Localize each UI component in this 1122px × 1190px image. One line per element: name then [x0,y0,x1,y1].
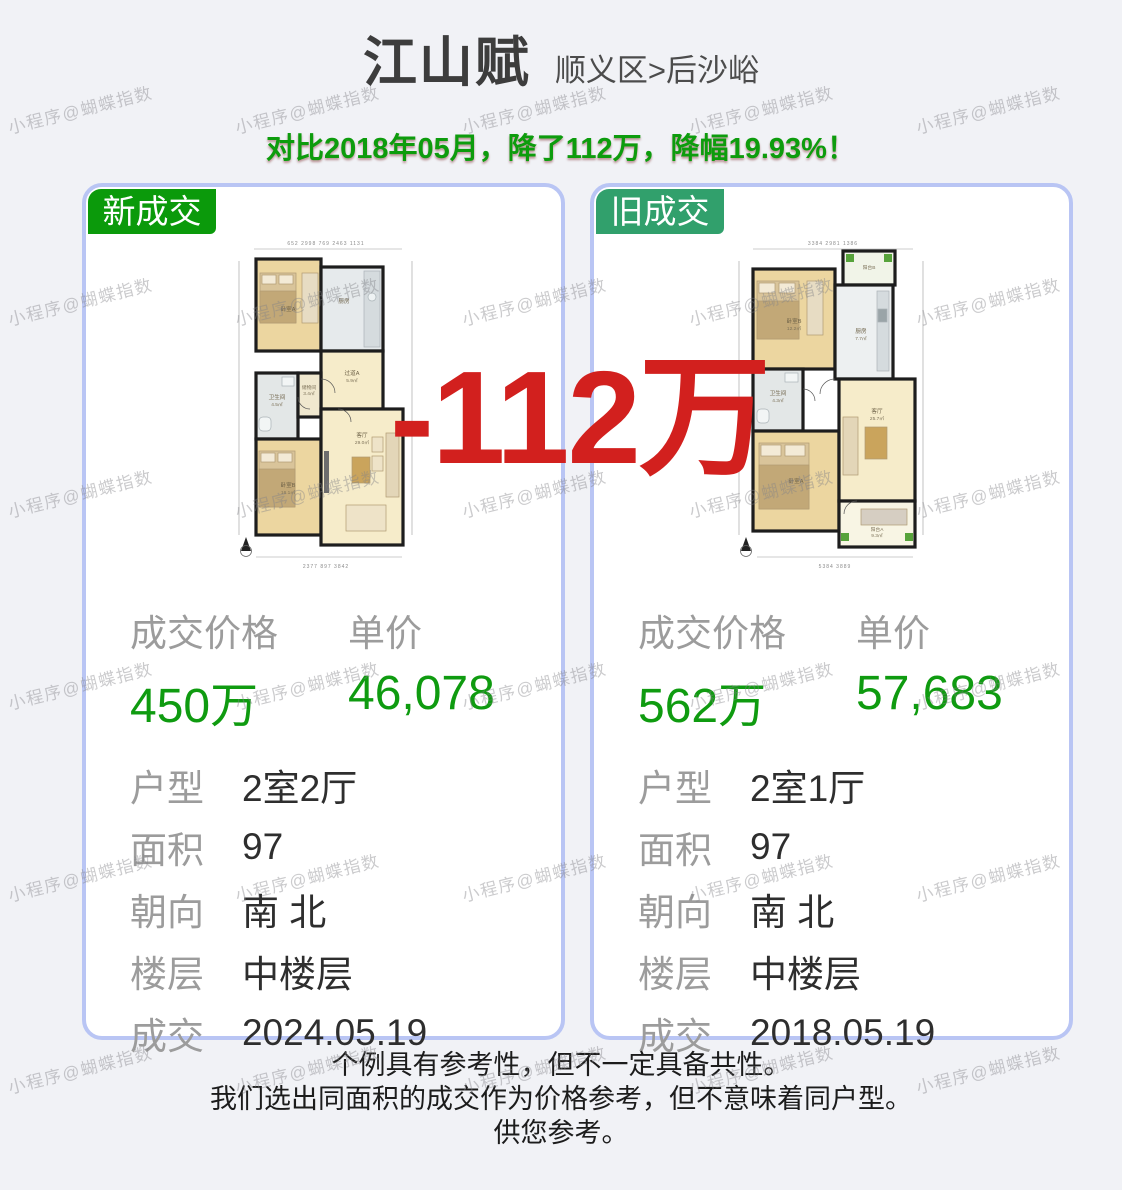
disclaimer: 个例具有参考性，但不一定具备共性。 我们选出同面积的成交作为价格参考，但不意味着… [0,1048,1122,1150]
breadcrumb: 顺义区>后沙峪 [555,45,759,90]
detail-value: 南 北 [242,882,326,936]
disclaimer-line-2: 我们选出同面积的成交作为价格参考，但不意味着同户型。 [0,1082,1122,1116]
disclaimer-line-3: 供您参考。 [0,1116,1122,1150]
detail-value: 中楼层 [242,944,353,998]
new-deal-badge: 新成交 [88,189,216,234]
price-label: 成交价格 [638,603,856,657]
room-balcony-a-area: 9.3㎡ [871,532,883,539]
header: 江山赋 顺义区>后沙峪 [0,0,1122,97]
dimension-bottom-label: 2377 897 3842 [303,564,349,570]
detail-row-floor: 楼层 中楼层 [638,940,1069,1002]
room-living-area: 25.7㎡ [869,415,883,422]
dimension-top-label: 3384 2981 1386 [807,241,857,247]
room-kitchen-label: 厨房 [338,297,350,305]
compass-icon [241,537,252,557]
detail-value: 南 北 [750,882,834,936]
room-kitchen-label: 厨房 [855,327,867,335]
detail-label: 朝向 [638,882,750,936]
detail-label: 户型 [638,758,750,812]
unit-price-value: 57,683 [856,666,1069,721]
unit-price-label: 单价 [856,603,1069,657]
compass-icon [740,537,751,557]
unit-price-label: 单价 [348,603,561,657]
dimension-top-label: 652 2998 769 2463 1131 [287,241,364,247]
room-bedroom-b-area: 16.1㎡ [281,489,295,496]
detail-label: 面积 [130,820,242,874]
card-new-deal: 新成交 652 2998 769 2463 1131 [82,183,565,1040]
share-card-page: 江山赋 顺义区>后沙峪 对比2018年05月，降了112万，降幅19.93%！ … [0,0,1122,1190]
card-old-deal: 旧成交 3384 2981 1386 [590,183,1073,1040]
price-section: 成交价格 562万 单价 57,683 [594,577,1069,736]
detail-row-area: 面积 97 [638,816,1069,878]
unit-price-value: 46,078 [348,666,561,721]
detail-list: 户型 2室1厅 面积 97 朝向 南 北 楼层 中楼层 成交 2018.05 [594,736,1069,1064]
room-bath-area: 4.5㎡ [271,401,283,408]
room-living-label: 客厅 [356,431,368,439]
detail-label: 楼层 [130,944,242,998]
detail-row-layout: 户型 2室2厅 [130,754,561,816]
detail-value: 97 [242,826,283,868]
room-bedroom-b-area: 12.2㎡ [786,325,800,332]
detail-value: 97 [750,826,791,868]
price-value: 562万 [638,666,856,736]
page-title: 江山赋 [363,18,531,97]
room-bath-label: 卫生间 [269,393,286,401]
price-value: 450万 [130,666,348,736]
room-bath-label: 卫生间 [769,389,786,397]
detail-value: 2室2厅 [242,758,357,812]
room-balcony-b-label: 阳台B [862,264,875,271]
old-deal-badge: 旧成交 [596,189,724,234]
detail-value: 中楼层 [750,944,861,998]
detail-row-floor: 楼层 中楼层 [130,940,561,1002]
detail-label: 户型 [130,758,242,812]
room-living-label: 客厅 [871,407,883,415]
detail-value: 2室1厅 [750,758,865,812]
room-living-area: 29.0㎡ [355,439,369,446]
detail-row-orientation: 朝向 南 北 [638,878,1069,940]
price-section: 成交价格 450万 单价 46,078 [86,577,561,736]
disclaimer-line-1: 个例具有参考性，但不一定具备共性。 [0,1048,1122,1082]
room-closet-area: 3.4㎡ [303,390,315,397]
room-bedroom-b-label: 卧室B [281,481,296,489]
price-label: 成交价格 [130,603,348,657]
detail-label: 朝向 [130,882,242,936]
dimension-bottom-label: 5384 3889 [818,564,851,570]
detail-row-area: 面积 97 [130,816,561,878]
room-bedroom-a-label: 卧室A [281,305,296,313]
price-drop-announcement: 对比2018年05月，降了112万，降幅19.93%！ [0,125,1122,167]
price-drop-amount: -112万 [390,352,769,484]
room-hall-label: 过道A [345,369,360,377]
detail-label: 楼层 [638,944,750,998]
room-bedroom-b-label: 卧室B [786,317,801,325]
room-closet-label: 储物间 [302,384,317,391]
room-kitchen-area: 7.7㎡ [855,335,867,342]
room-bedroom-a-label: 卧室A [788,477,803,485]
detail-list: 户型 2室2厅 面积 97 朝向 南 北 楼层 中楼层 成交 2024.05 [86,736,561,1064]
room-hall-area: 5.9㎡ [346,377,358,384]
room-bath-area: 4.3㎡ [772,397,784,404]
comparison-cards: 新成交 652 2998 769 2463 1131 [82,183,1073,1040]
room-balcony-a-label: 阳台A [870,526,884,533]
detail-row-orientation: 朝向 南 北 [130,878,561,940]
detail-row-layout: 户型 2室1厅 [638,754,1069,816]
detail-label: 面积 [638,820,750,874]
